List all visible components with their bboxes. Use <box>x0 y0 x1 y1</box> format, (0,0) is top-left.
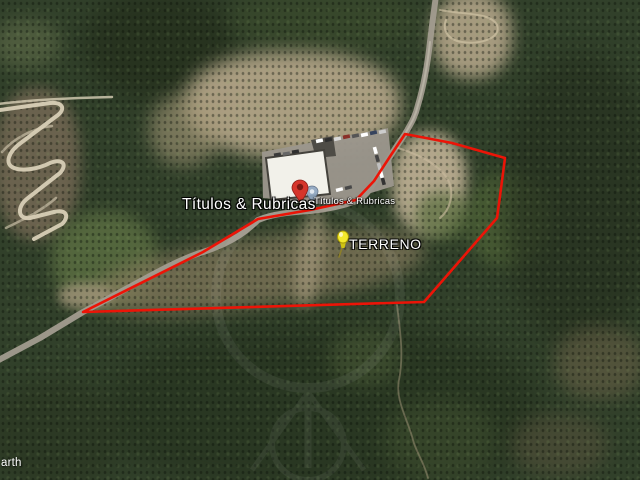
yellow-pushpin-icon[interactable] <box>338 231 349 257</box>
kart-track <box>0 97 112 239</box>
business-label-small: Títulos & Rubricas <box>314 196 395 207</box>
earth-logo-watermark: arth <box>1 457 22 469</box>
google-earth-viewport[interactable]: Títulos & Rubricas Títulos & Rubricas TE… <box>0 0 640 480</box>
parcel-label: TERRENO <box>349 236 422 252</box>
business-label-large: Títulos & Rubricas <box>182 196 316 214</box>
